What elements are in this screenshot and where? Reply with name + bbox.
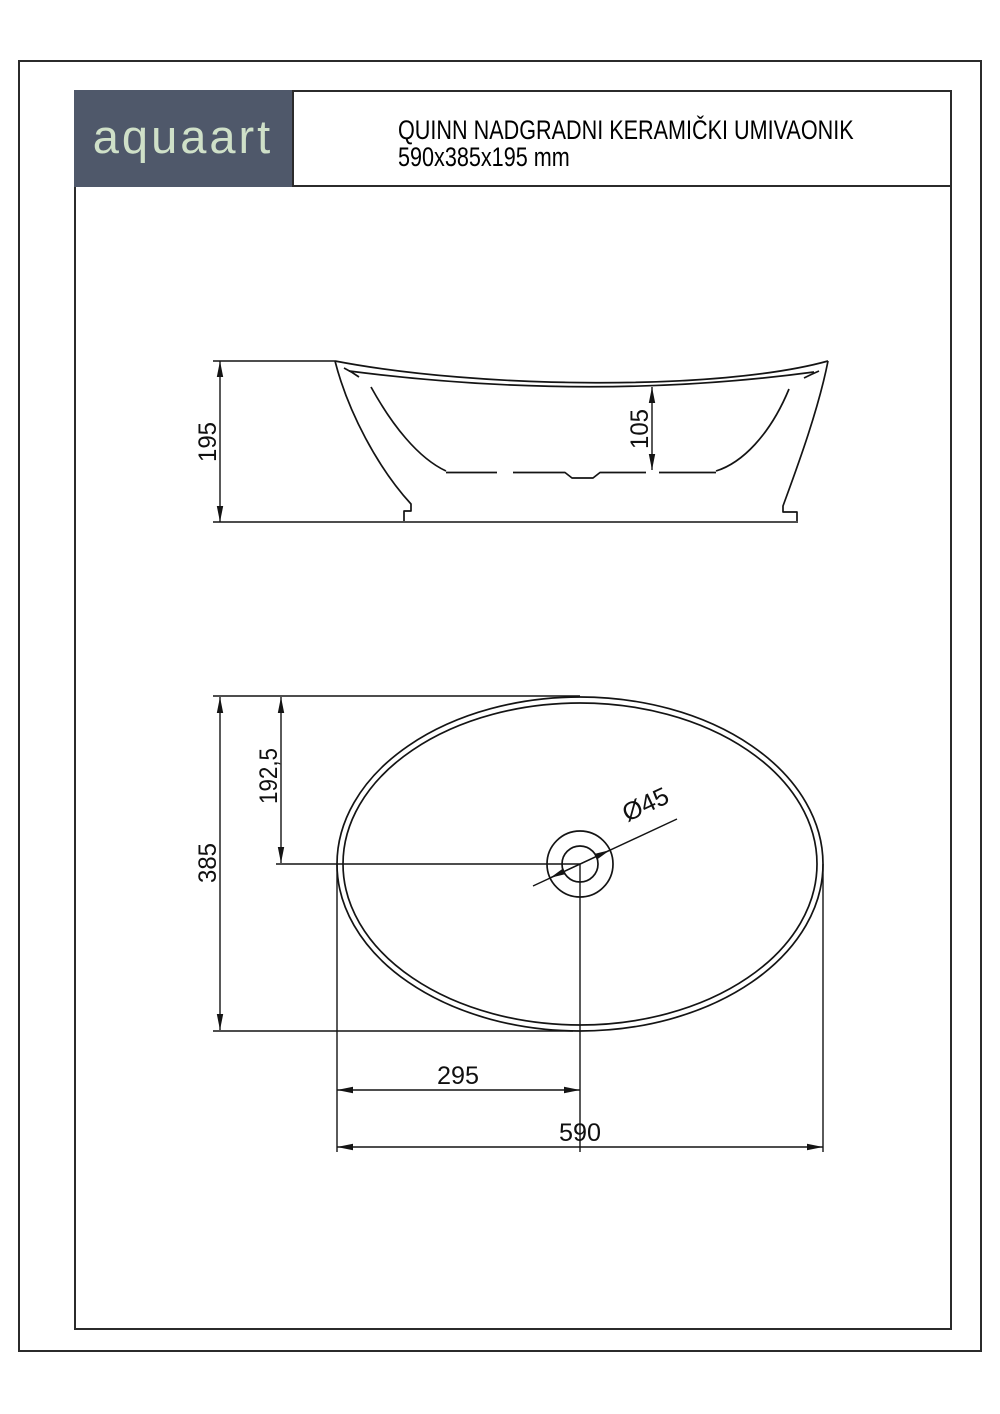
drain-leader-arrow-2 [580, 850, 610, 864]
dim-text-590: 590 [559, 1119, 601, 1147]
side-inner-wall-left [371, 387, 446, 471]
side-inner-wall-right [716, 389, 789, 471]
dim-text-105: 105 [626, 409, 654, 449]
side-wall-right [783, 361, 828, 521]
drain-leader-arrow-1 [550, 864, 580, 878]
dim-text-295: 295 [437, 1062, 479, 1090]
side-view [213, 361, 828, 522]
dim-text-drain: Ø45 [618, 782, 673, 828]
side-wall-left [335, 361, 411, 521]
side-bowl-bottom [446, 473, 716, 479]
technical-drawing: 195 105 385 192,5 Ø45 295 590 [0, 0, 1000, 1414]
dim-text-192-5: 192,5 [255, 748, 283, 804]
dim-text-385: 385 [194, 843, 222, 883]
dim-text-195: 195 [194, 422, 222, 462]
top-view [213, 696, 823, 1152]
